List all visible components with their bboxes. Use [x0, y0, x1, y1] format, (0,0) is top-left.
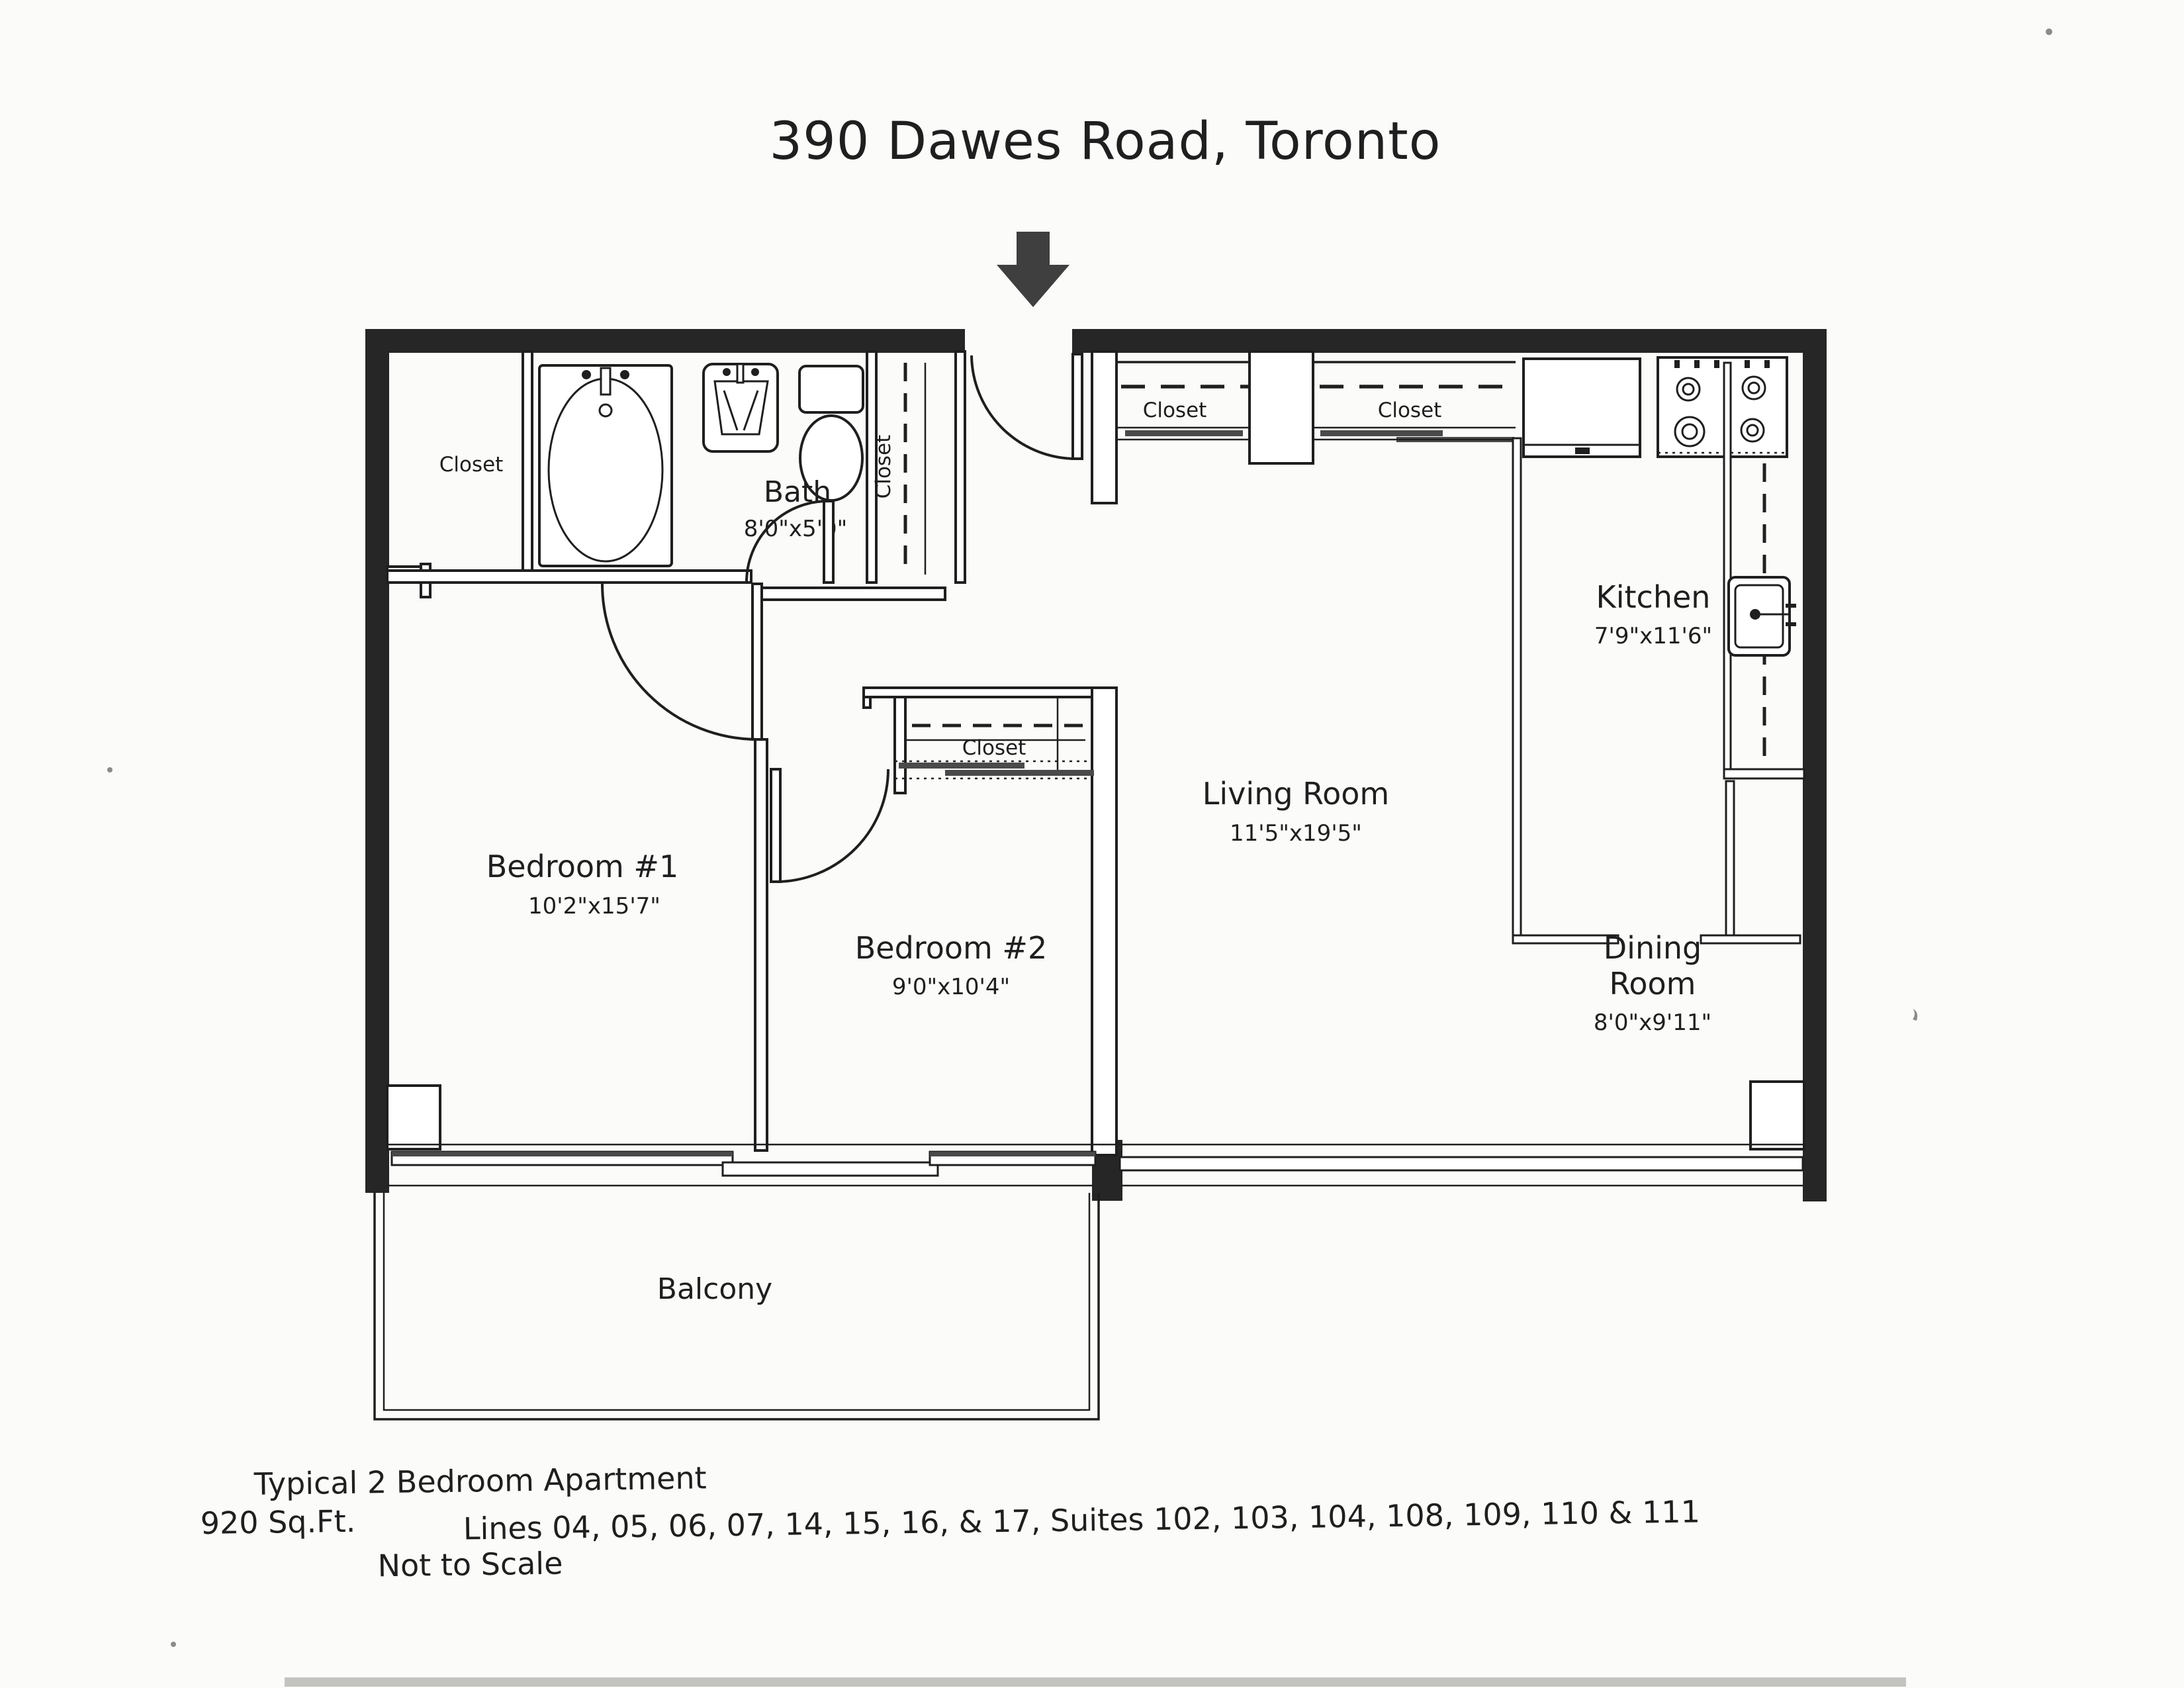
- balcony-rail: [375, 1193, 1099, 1419]
- footer-units-line: Lines 04, 05, 06, 07, 14, 15, 16, & 17, …: [463, 1493, 1701, 1546]
- bedroom1-door-leaf: [752, 584, 762, 739]
- bedroom-divider-wall: [755, 739, 767, 1150]
- kitchen-west-wall: [1513, 438, 1521, 943]
- entry-door-leaf: [1073, 354, 1082, 459]
- living-room-label: Living Room: [1203, 776, 1389, 812]
- hall-closet-right-slider-1: [1320, 430, 1443, 436]
- footer-type-line: Typical 2 Bedroom Apartment: [253, 1460, 707, 1502]
- bedroom2-door-swing-arc: [776, 769, 888, 882]
- bedroom2-door-jamb: [864, 697, 870, 708]
- hall-closet-left-slider: [1125, 430, 1243, 436]
- kitchen-counter-bottom: [1724, 769, 1804, 778]
- bedroom2-east-wall: [1092, 688, 1116, 1155]
- hall-south-wall: [752, 588, 945, 600]
- linen-closet-label: Closet: [872, 435, 895, 499]
- window-panel-4: [1120, 1157, 1803, 1170]
- fridge: [1524, 359, 1640, 457]
- bath-sink: [704, 364, 778, 451]
- bedroom2-closet-slider-1: [899, 763, 1024, 769]
- bath-south-wall: [387, 571, 751, 583]
- hall-closets-divider: [1250, 352, 1313, 463]
- outer-wall-left: [365, 329, 389, 1193]
- stove: [1658, 357, 1787, 457]
- bath-label: Bath: [764, 475, 831, 509]
- bedroom2-closet-top-wall: [864, 688, 1092, 697]
- footer-block: Typical 2 Bedroom Apartment 920 Sq.Ft. L…: [200, 1446, 1701, 1586]
- bedroom2-dims: 9'0"x10'4": [892, 974, 1010, 1000]
- kitchen-dims: 7'9"x11'6": [1594, 623, 1712, 649]
- bedroom1-label: Bedroom #1: [486, 849, 679, 884]
- kitchen-west-wall-foot: [1513, 935, 1618, 943]
- dining-room-label-line2: Room: [1610, 966, 1696, 1002]
- bedroom1-dims: 10'2"x15'7": [528, 893, 660, 919]
- scan-artifacts: [107, 28, 2052, 1687]
- bedroom1-radiator: [387, 1086, 440, 1149]
- floor-plan-page: 390 Dawes Road, Toronto Closet: [0, 0, 2184, 1688]
- balcony-label: Balcony: [657, 1272, 772, 1306]
- bathtub-faucet-icon: [601, 368, 610, 395]
- page-title: 390 Dawes Road, Toronto: [770, 112, 1441, 171]
- linen-closet-east-wall: [956, 352, 965, 583]
- living-room-dims: 11'5"x19'5": [1230, 820, 1362, 847]
- bedroom2-closet-label: Closet: [962, 736, 1026, 760]
- dining-room-label-line1: Dining: [1604, 930, 1702, 966]
- bathtub: [539, 365, 672, 566]
- outer-wall-top-right: [1072, 329, 1827, 353]
- bedroom1-closet-label: Closet: [439, 453, 504, 477]
- footer-scale-line: Not to Scale: [377, 1545, 563, 1583]
- bath-sink-faucet-icon: [737, 364, 743, 383]
- outer-wall-top-left: [365, 329, 965, 353]
- dining-room-dims: 8'0"x9'11": [1594, 1009, 1711, 1036]
- hall-closet-right-label: Closet: [1378, 399, 1442, 422]
- entry-door-swing-arc: [972, 355, 1077, 459]
- kitchen-label: Kitchen: [1596, 579, 1711, 615]
- bath-door-leaf: [824, 501, 833, 583]
- hall-wall-stub: [1092, 352, 1116, 503]
- bedroom2-closet-slider-2: [945, 770, 1094, 776]
- entrance-arrow-icon: [997, 232, 1069, 307]
- window-panel-2: [723, 1162, 938, 1176]
- bedroom2-door-leaf: [771, 769, 780, 882]
- footer-area-line: 920 Sq.Ft.: [200, 1503, 355, 1541]
- floor-plan-drawing: 390 Dawes Road, Toronto Closet: [0, 0, 2184, 1688]
- dining-radiator: [1751, 1082, 1804, 1149]
- hall-closet-left-label: Closet: [1143, 399, 1207, 422]
- bedroom1-closet-east-wall: [523, 352, 532, 574]
- outer-wall-right: [1803, 329, 1827, 1201]
- kitchen-east-partial-wall: [1726, 781, 1734, 943]
- bedroom1-door-swing-arc: [602, 584, 758, 739]
- kitchen-sink: [1729, 577, 1796, 655]
- kitchen-east-wall-foot: [1701, 935, 1800, 943]
- bedroom2-label: Bedroom #2: [855, 930, 1048, 966]
